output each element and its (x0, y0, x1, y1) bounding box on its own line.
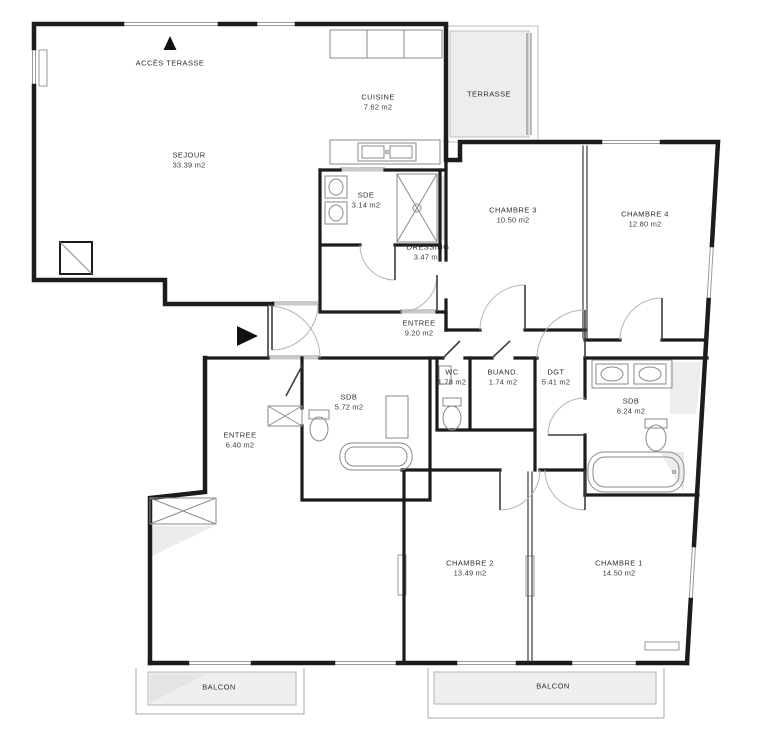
floor-plan: ACCÈS TERASSE SEJOUR33.39 m2 CUISINE7.62… (0, 0, 775, 741)
walls (34, 24, 718, 663)
access-terrasse-arrow-icon (164, 36, 177, 50)
windows (33, 23, 714, 665)
entrance-arrow-icon (237, 326, 258, 346)
outdoor-areas (136, 26, 702, 718)
floor-plan-drawing (0, 0, 775, 741)
fixtures (60, 30, 684, 524)
door-thresholds (268, 167, 437, 360)
